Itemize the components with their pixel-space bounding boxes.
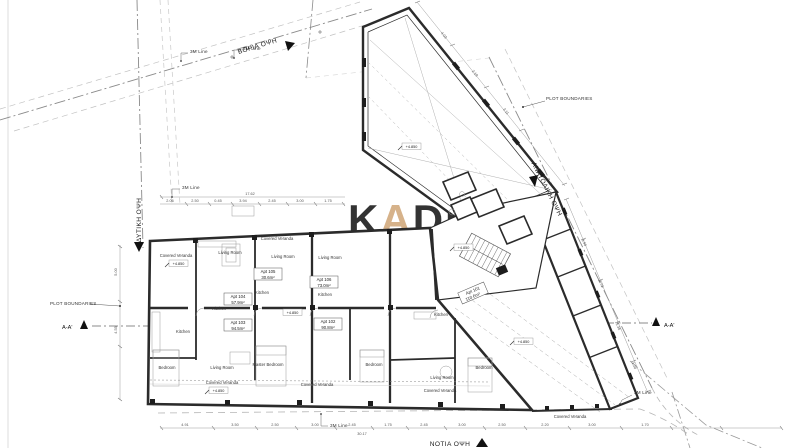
west-elevation-label: ΔΥΤΙΚΗ ΟΨΗ — [134, 198, 144, 252]
room-label: Covered Veranda — [261, 236, 294, 241]
svg-text:+4.850: +4.850 — [458, 246, 470, 250]
svg-text:3.00: 3.00 — [588, 423, 595, 427]
room-label: Living Room — [218, 250, 242, 255]
svg-text:3M Line: 3M Line — [330, 423, 348, 428]
svg-text:2.50: 2.50 — [498, 423, 505, 427]
svg-text:1.75: 1.75 — [324, 199, 331, 203]
svg-text:ΔΥΤΙΚΗ ΟΨΗ: ΔΥΤΙΚΗ ΟΨΗ — [136, 198, 143, 243]
room-label: Kitchen — [176, 329, 191, 334]
setback-note: 3M Line — [180, 49, 208, 62]
svg-text:30.6m²: 30.6m² — [261, 275, 275, 280]
apartment-label-103: Apt 103 94.5m² — [224, 319, 252, 331]
svg-text:0.45: 0.45 — [214, 199, 221, 203]
level-marker: +4.850 — [510, 338, 533, 345]
svg-text:+4.850: +4.850 — [287, 311, 299, 315]
svg-text:3.50: 3.50 — [231, 423, 238, 427]
section-marker-left — [80, 320, 88, 329]
svg-text:3.00: 3.00 — [311, 423, 318, 427]
svg-text:4.03: 4.03 — [440, 31, 448, 39]
svg-text:90.8m²: 90.8m² — [321, 325, 335, 330]
section-label-right: A-A' — [664, 323, 674, 329]
room-label: Living Room — [430, 375, 454, 380]
svg-text:3.94: 3.94 — [239, 199, 246, 203]
svg-text:2.50: 2.50 — [271, 423, 278, 427]
svg-text:3.00: 3.00 — [296, 199, 303, 203]
svg-text:ΒΟΡΙΑ ΟΨΗ: ΒΟΡΙΑ ΟΨΗ — [237, 37, 278, 56]
svg-text:+4.850: +4.850 — [406, 145, 418, 149]
setback-note: 3M Line — [171, 185, 200, 198]
svg-text:3M Line: 3M Line — [634, 390, 652, 395]
south-elevation-label: ΝΟΤΙΑ ΟΨΗ — [430, 438, 488, 448]
svg-text:73.0m²: 73.0m² — [317, 283, 331, 288]
level-marker: +4.850 — [283, 309, 302, 315]
room-label: Covered Veranda — [160, 253, 193, 258]
north-elevation-arrow — [285, 41, 295, 51]
south-elevation-arrow — [476, 438, 488, 447]
room-label: Covered Veranda — [424, 388, 457, 393]
svg-text:5.36: 5.36 — [615, 322, 621, 330]
svg-text:5.00: 5.00 — [114, 268, 118, 275]
svg-text:Apt 106: Apt 106 — [317, 277, 332, 282]
apartment-label-102: Apt 102 90.8m² — [314, 318, 342, 330]
svg-text:1.70: 1.70 — [641, 423, 648, 427]
west-elevation-arrow — [134, 242, 144, 252]
room-label: Kitchen — [255, 290, 270, 295]
svg-text:PLOT BOUNDARIES: PLOT BOUNDARIES — [546, 96, 593, 101]
room-label: Bedroom — [476, 365, 494, 370]
north-elevation-label: ΒΟΡΙΑ ΟΨΗ — [237, 37, 295, 56]
plot-boundaries-note-top: PLOT BOUNDARIES — [522, 96, 593, 108]
svg-text:2.45: 2.45 — [348, 423, 355, 427]
apartment-label-106: Apt 106 73.0m² — [310, 276, 338, 288]
svg-text:4.91: 4.91 — [181, 423, 188, 427]
site-plan-sheet: KADIS ESTATES A-A' A-A' 17.62 2.06 2 — [0, 0, 796, 448]
svg-text:3.11: 3.11 — [502, 107, 510, 115]
room-label: Covered Veranda — [206, 380, 239, 385]
svg-text:+4.850: +4.850 — [173, 262, 185, 266]
svg-text:57.9m²: 57.9m² — [231, 300, 245, 305]
floor-plan-drawing: KADIS ESTATES A-A' A-A' 17.62 2.06 2 — [0, 0, 796, 448]
apartment-label-104: Apt 104 57.9m² — [224, 293, 252, 305]
svg-text:2.72: 2.72 — [598, 279, 604, 287]
svg-text:PLOT BOUNDARIES: PLOT BOUNDARIES — [50, 301, 97, 306]
room-label: Covered Veranda — [301, 382, 334, 387]
dim-bottom-total: 30.17 — [357, 432, 367, 436]
svg-text:Apt 104: Apt 104 — [231, 294, 246, 299]
section-marker-right — [652, 317, 660, 326]
svg-text:3.00: 3.00 — [458, 423, 465, 427]
room-label: Master Bedroom — [253, 362, 284, 367]
room-label: Kitchen — [212, 306, 227, 311]
room-label: Bedroom — [366, 362, 384, 367]
svg-text:2.20: 2.20 — [541, 423, 548, 427]
svg-text:Apt 105: Apt 105 — [261, 269, 276, 274]
room-label: Covered Veranda — [554, 414, 587, 419]
apartment-label-105: Apt 105 30.6m² — [254, 268, 282, 280]
svg-text:3M Line: 3M Line — [190, 49, 208, 54]
svg-text:94.5m²: 94.5m² — [231, 326, 245, 331]
room-label: Living Room — [210, 365, 234, 370]
room-label: Kitchen — [318, 292, 333, 297]
svg-text:2.19: 2.19 — [471, 69, 479, 77]
svg-text:2.50: 2.50 — [191, 199, 198, 203]
svg-text:+4.850: +4.850 — [213, 389, 225, 393]
svg-text:2.06: 2.06 — [166, 199, 173, 203]
svg-text:2.45: 2.45 — [420, 423, 427, 427]
room-label: Bedroom — [159, 365, 177, 370]
room-label: Kitchen — [434, 312, 449, 317]
svg-text:+4.850: +4.850 — [518, 340, 530, 344]
svg-text:ΝΟΤΙΑ ΟΨΗ: ΝΟΤΙΑ ΟΨΗ — [430, 441, 471, 448]
room-label: Living Room — [318, 255, 342, 260]
svg-text:Apt 102: Apt 102 — [321, 319, 336, 324]
svg-text:Apt 103: Apt 103 — [231, 320, 246, 325]
plot-boundaries-note-left: PLOT BOUNDARIES — [50, 301, 121, 307]
svg-text:4.55: 4.55 — [114, 326, 118, 333]
svg-text:1.75: 1.75 — [384, 423, 391, 427]
svg-text:1.20: 1.20 — [631, 361, 637, 369]
svg-text:3M Line: 3M Line — [182, 185, 200, 190]
svg-text:2.45: 2.45 — [268, 199, 275, 203]
room-label: Living Room — [271, 254, 295, 259]
dim-top-total: 17.62 — [245, 192, 255, 196]
section-label-left: A-A' — [62, 325, 72, 331]
setback-note: 3M Line — [320, 413, 348, 428]
